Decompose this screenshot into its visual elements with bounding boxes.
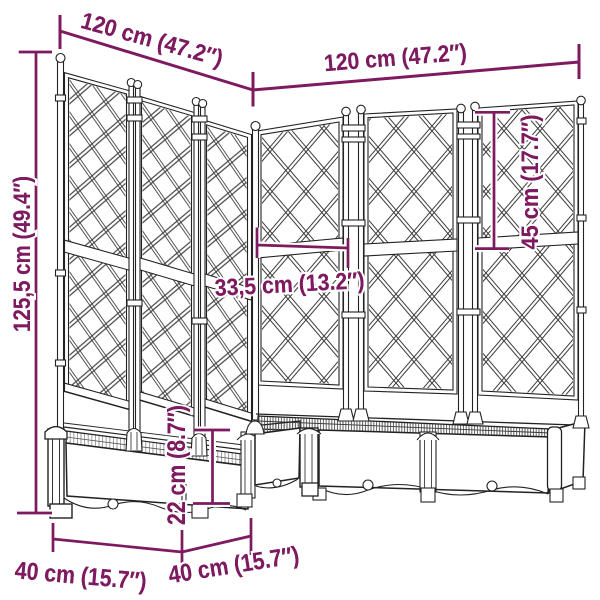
svg-text:125,5 cm (49.4″): 125,5 cm (49.4″) (9, 176, 36, 332)
svg-text:45 cm (17.7″): 45 cm (17.7″) (517, 115, 544, 250)
svg-text:22 cm (8.7″): 22 cm (8.7″) (163, 405, 191, 525)
svg-text:40 cm (15.7″): 40 cm (15.7″) (14, 557, 148, 595)
